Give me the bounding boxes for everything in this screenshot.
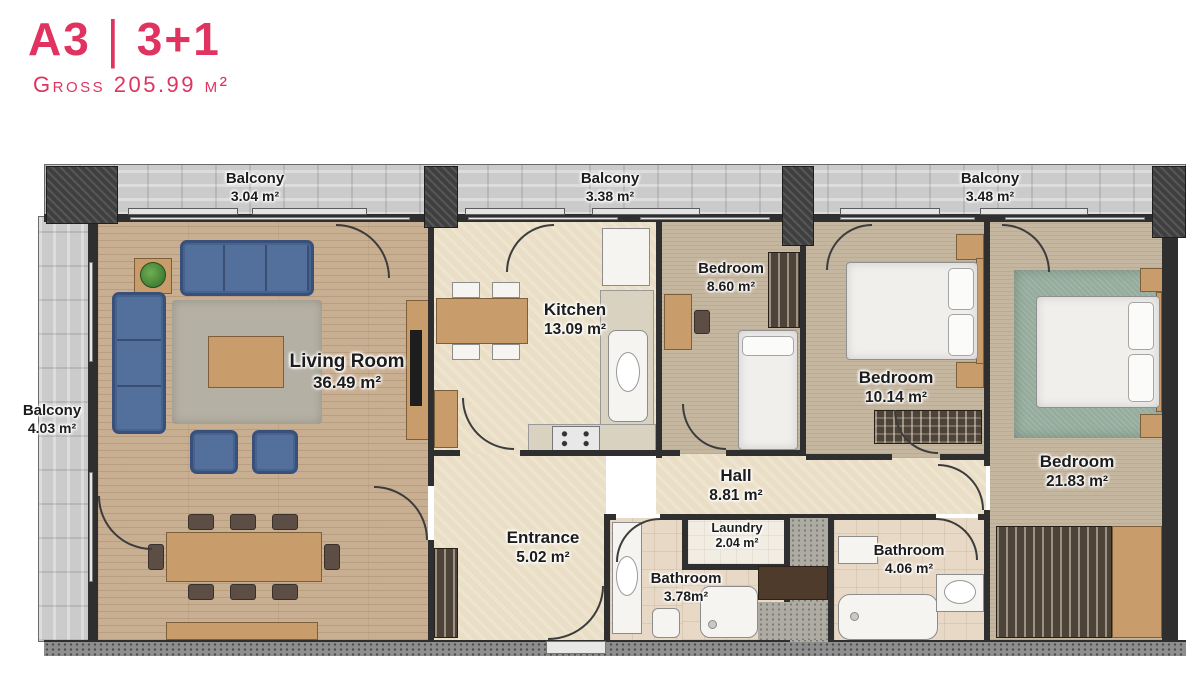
toilet — [652, 608, 680, 638]
interior-wall — [662, 450, 680, 456]
interior-wall — [726, 450, 804, 456]
kitchen-label: Kitchen 13.09 m² — [500, 300, 650, 340]
dining-chair — [272, 584, 298, 600]
hall-label: Hall 8.81 m² — [656, 466, 816, 506]
dining-chair — [324, 544, 340, 570]
bathroom-large-label: Bathroom 4.06 m² — [832, 542, 986, 577]
room-name: Balcony — [0, 402, 104, 420]
pillow — [1128, 302, 1154, 350]
balcony-top-middle-label: Balcony 3.38 m² — [535, 170, 685, 205]
dining-chair — [272, 514, 298, 530]
room-area: 3.38 m² — [535, 188, 685, 205]
interior-wall — [978, 514, 990, 520]
interior-wall — [428, 540, 434, 642]
room-name: Balcony — [180, 170, 330, 188]
interior-wall — [656, 222, 662, 458]
living-room-label: Living Room 36.49 m² — [262, 350, 432, 394]
kitchen-chair — [452, 344, 480, 360]
room-area: 4.03 m² — [0, 420, 104, 437]
bathroom-small-label: Bathroom 3.78m² — [612, 570, 760, 605]
front-door-opening — [546, 641, 606, 654]
kitchen-cabinet — [434, 390, 458, 448]
window-glass — [840, 217, 975, 220]
wood-cabinet — [1112, 526, 1162, 638]
shaft — [758, 602, 828, 640]
kitchen-chair — [492, 344, 520, 360]
sideboard — [166, 622, 318, 640]
dining-chair — [188, 584, 214, 600]
window-sill — [592, 208, 700, 215]
bedroom-middle-label: Bedroom 10.14 m² — [808, 368, 984, 408]
interior-wall — [806, 454, 892, 460]
unit-layout-type: 3+1 — [137, 13, 221, 65]
gross-area-subtitle: Gross 205.99 m² — [33, 72, 229, 98]
column-block — [1152, 166, 1186, 238]
window-glass — [130, 217, 410, 220]
fridge — [602, 228, 650, 286]
shoe-closet — [434, 548, 458, 638]
balcony-top-left-label: Balcony 3.04 m² — [180, 170, 330, 205]
laundry-label: Laundry 2.04 m² — [688, 520, 786, 551]
column-block — [46, 166, 118, 224]
dining-chair — [230, 514, 256, 530]
plant — [140, 262, 166, 288]
window-sill — [980, 208, 1088, 215]
pillow — [742, 336, 794, 356]
room-area: 3.78m² — [612, 588, 760, 605]
room-area: 8.81 m² — [656, 487, 816, 506]
column-block — [424, 166, 458, 228]
sofa-left — [112, 292, 166, 434]
plan-title: A3|3+1 — [28, 12, 221, 66]
room-name: Bathroom — [612, 570, 760, 588]
room-name: Balcony — [915, 170, 1065, 188]
window-sill — [128, 208, 238, 215]
kitchen-chair — [452, 282, 480, 298]
room-name: Laundry — [688, 520, 786, 536]
shower-drain — [708, 620, 717, 629]
window-glass — [640, 217, 770, 220]
stove — [552, 426, 600, 451]
room-name: Entrance — [468, 528, 618, 549]
interior-wall — [984, 222, 990, 458]
room-name: Bedroom — [992, 452, 1162, 473]
desk-chair — [694, 310, 710, 334]
bedroom-large-label: Bedroom 21.83 m² — [992, 452, 1162, 492]
room-name: Kitchen — [500, 300, 650, 321]
room-area: 4.06 m² — [832, 560, 986, 577]
interior-wall — [828, 518, 834, 642]
title-separator: | — [107, 8, 121, 70]
room-name: Balcony — [535, 170, 685, 188]
pillow — [948, 268, 974, 310]
room-area: 8.60 m² — [662, 278, 800, 295]
sink-basin — [616, 352, 640, 392]
room-area: 3.48 m² — [915, 188, 1065, 205]
right-wall — [1162, 216, 1178, 642]
interior-wall — [984, 458, 990, 466]
kitchen-chair — [492, 282, 520, 298]
pillow — [1128, 354, 1154, 402]
interior-wall — [434, 450, 460, 456]
balcony-top-right-label: Balcony 3.48 m² — [915, 170, 1065, 205]
unit-code: A3 — [28, 13, 91, 65]
interior-wall — [520, 450, 658, 456]
bedroom-small-label: Bedroom 8.60 m² — [662, 260, 800, 295]
sofa-three-seat — [180, 240, 314, 296]
interior-wall — [940, 454, 986, 460]
tub-drain — [850, 612, 859, 621]
window-sill — [252, 208, 367, 215]
room-area: 36.49 m² — [262, 373, 432, 394]
armchair — [190, 430, 238, 474]
room-name: Bathroom — [832, 542, 986, 560]
interior-wall — [800, 222, 806, 456]
dining-table — [166, 532, 322, 582]
dining-chair — [230, 584, 256, 600]
floor-plan-canvas: A3|3+1 Gross 205.99 m² — [0, 0, 1200, 686]
wardrobe — [996, 526, 1112, 638]
balcony-left-label: Balcony 4.03 m² — [0, 402, 104, 437]
room-area: 3.04 m² — [180, 188, 330, 205]
nightstand — [956, 234, 984, 260]
entrance-label: Entrance 5.02 m² — [468, 528, 618, 568]
room-name: Bedroom — [808, 368, 984, 389]
window-glass — [468, 217, 618, 220]
room-area: 10.14 m² — [808, 389, 984, 408]
desk — [664, 294, 692, 350]
room-area: 5.02 m² — [468, 549, 618, 568]
room-area: 2.04 m² — [688, 536, 786, 551]
room-area: 13.09 m² — [500, 321, 650, 340]
room-name: Hall — [656, 466, 816, 487]
window-glass — [89, 472, 93, 582]
sink-basin — [944, 580, 976, 604]
bottom-wall — [44, 640, 1186, 656]
dining-chair — [188, 514, 214, 530]
room-name: Bedroom — [662, 260, 800, 278]
window-sill — [465, 208, 565, 215]
hall-cabinet — [758, 566, 828, 600]
column-block — [782, 166, 814, 246]
room-name: Living Room — [262, 350, 432, 373]
window-sill — [840, 208, 940, 215]
room-area: 21.83 m² — [992, 473, 1162, 492]
pillow — [948, 314, 974, 356]
window-glass — [1005, 217, 1145, 220]
window-glass — [89, 262, 93, 362]
armchair — [252, 430, 298, 474]
